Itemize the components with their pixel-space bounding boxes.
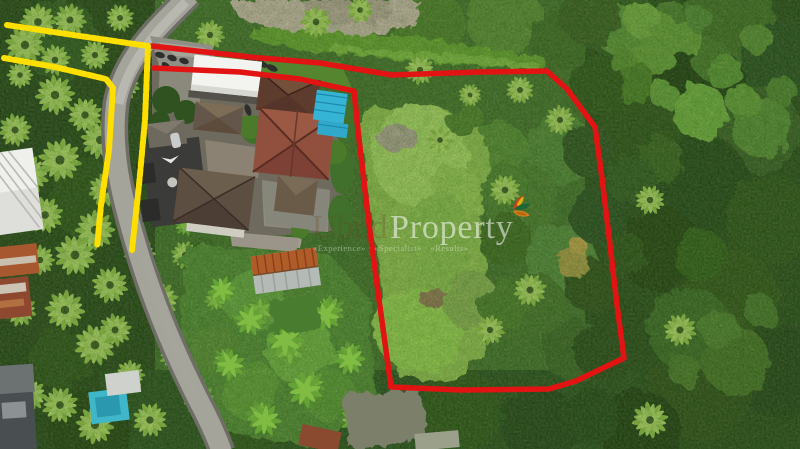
svg-text:Ubud: Ubud	[312, 209, 388, 246]
svg-text:«Experience» · «Specialist» ·: «Experience» · «Specialist» · «Results»	[313, 243, 468, 253]
svg-text:Property: Property	[390, 209, 514, 246]
